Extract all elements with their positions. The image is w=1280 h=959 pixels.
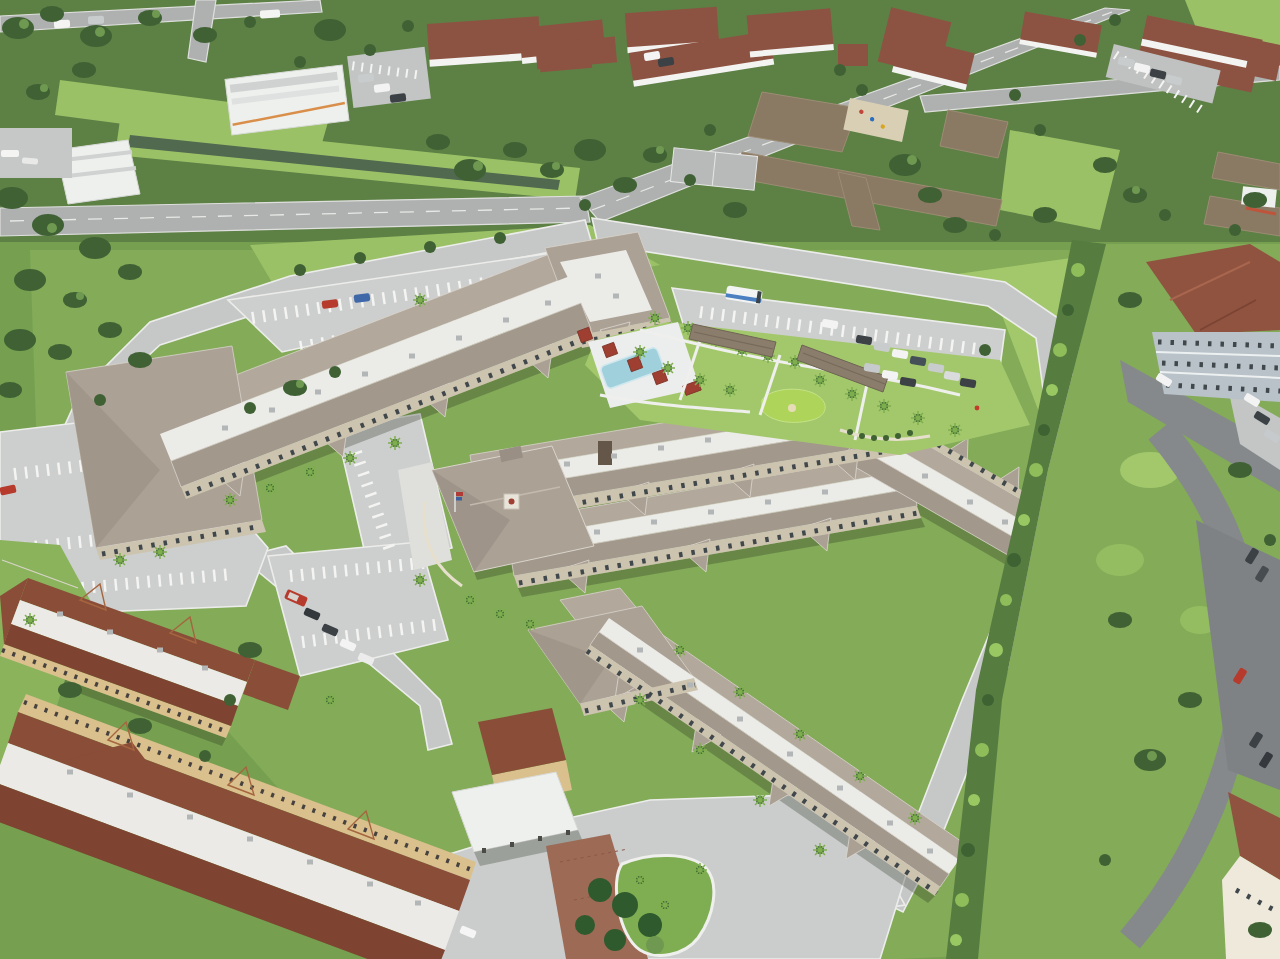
rv-2 [22, 157, 38, 164]
flag [456, 492, 463, 496]
stone-tower-accent [598, 441, 612, 465]
cupola-dome [509, 499, 515, 505]
truck-top-road [260, 9, 280, 18]
pedestrian [975, 406, 980, 411]
flag-2 [456, 497, 462, 501]
aerial-photograph [0, 0, 1280, 959]
aerial-photo-canvas [0, 0, 1280, 959]
sand-bunker [788, 404, 796, 412]
rv-1 [1, 150, 19, 157]
